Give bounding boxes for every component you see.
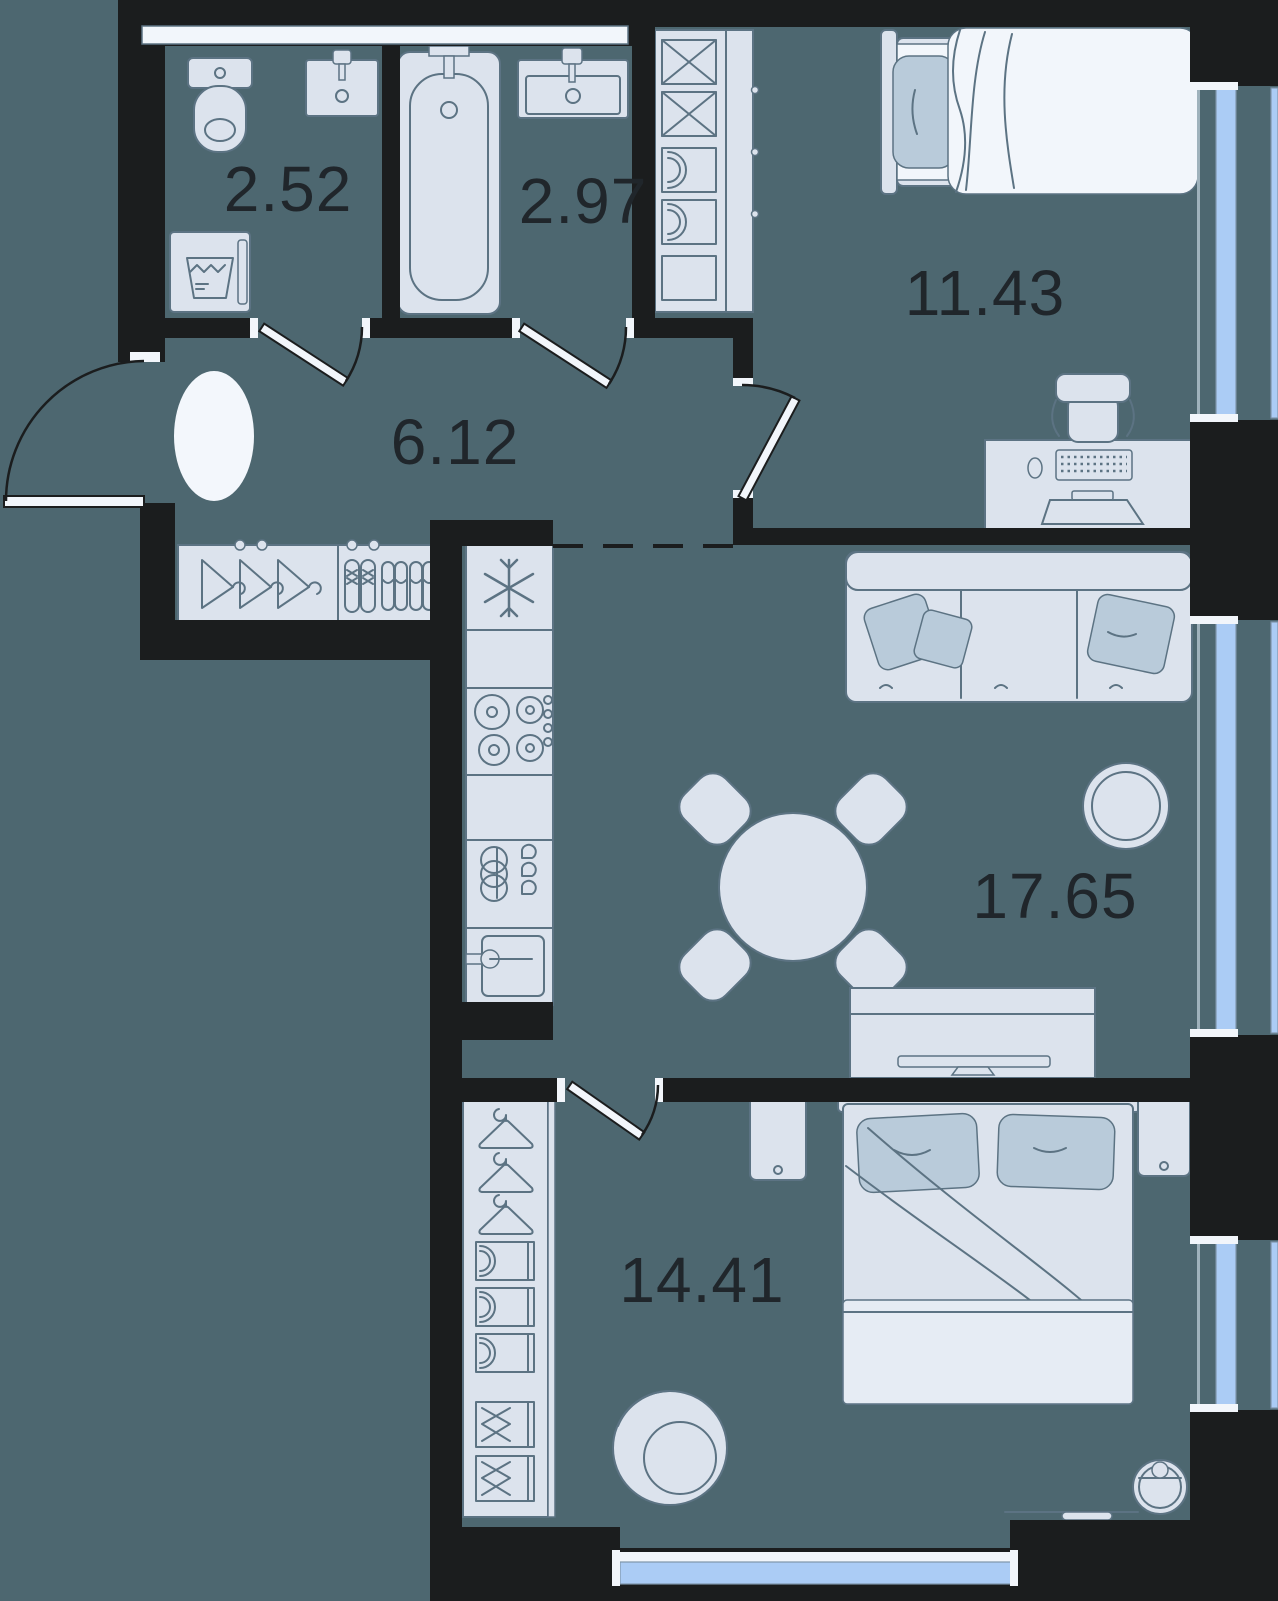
window-bedroom-2-bottom (612, 1550, 1018, 1586)
wc-door (250, 318, 370, 386)
armchair-icon (613, 1391, 727, 1505)
single-bed-icon (881, 28, 1198, 194)
double-bed-icon (838, 1094, 1140, 1404)
desk-chair-icon (1052, 374, 1134, 442)
window-bedroom-2-side (1197, 1242, 1278, 1408)
bedroom-2-door (557, 1078, 663, 1140)
kitchen-units (466, 545, 553, 1005)
toilet-icon (188, 58, 252, 152)
robot-vacuum-icon (1005, 1460, 1187, 1520)
room-label-bedroom-2: 14.41 (619, 1244, 784, 1316)
room-label-bedroom: 11.43 (905, 257, 1065, 329)
bathroom-sink-icon (518, 48, 628, 118)
hallway-wardrobe-icon (178, 540, 435, 627)
vent-duct (142, 26, 628, 44)
room-label-hallway: 6.12 (391, 406, 520, 478)
window-bedroom (1197, 88, 1278, 418)
wardrobe-icon (463, 1100, 555, 1517)
tv-stand-icon (850, 988, 1095, 1078)
wc-sink-icon (306, 50, 378, 116)
room-label-living-kitchen: 17.65 (972, 860, 1137, 932)
nightstand-icon (1138, 1096, 1190, 1176)
room-label-wc: 2.52 (224, 153, 353, 225)
floor-plan-canvas: 2.52 2.97 6.12 11.43 17.65 14.41 (0, 0, 1278, 1601)
dining-table-icon (672, 766, 914, 1008)
monitor-icon (1042, 500, 1143, 524)
linen-shelves-icon (655, 30, 759, 312)
tv-icon (898, 1056, 1050, 1067)
monitor-stand (1072, 491, 1113, 500)
desk-icon (985, 440, 1197, 530)
nightstand-icon (750, 1096, 806, 1180)
entrance-door (4, 352, 160, 507)
window-living (1197, 622, 1278, 1033)
coffee-table-icon (1083, 763, 1169, 849)
pillow (856, 1113, 980, 1193)
sofa-icon (846, 552, 1192, 702)
bathroom-door (512, 318, 634, 388)
bedroom-door (733, 378, 799, 500)
washing-machine-icon (170, 232, 250, 312)
room-label-bathroom: 2.97 (519, 165, 648, 237)
floor-plan: 2.52 2.97 6.12 11.43 17.65 14.41 (0, 0, 1278, 1601)
bathtub-icon (398, 46, 500, 314)
hallway-rug (174, 371, 254, 501)
